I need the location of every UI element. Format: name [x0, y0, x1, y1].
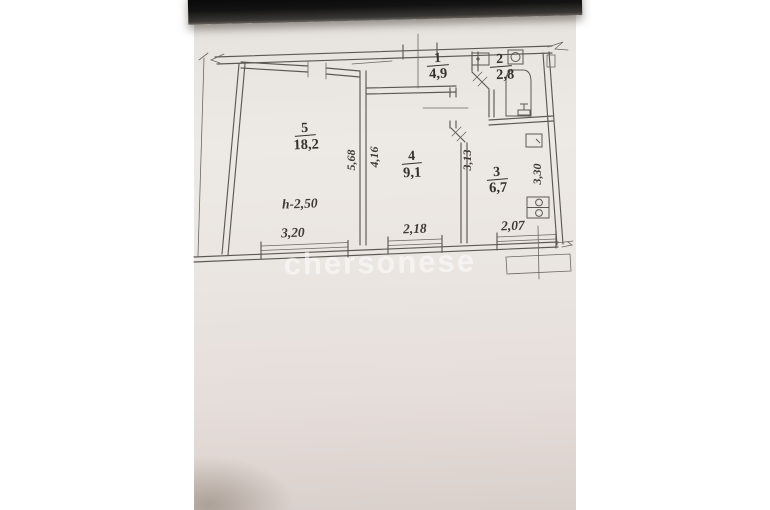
room-number: 4	[408, 149, 416, 164]
vent-shaft	[547, 55, 555, 67]
door-jamb	[308, 61, 326, 79]
width-dim-room5: 3,20	[280, 225, 305, 241]
width-dim-room4: 2,18	[402, 221, 427, 237]
page: 5 18,2 4 9,1 3 6,7 1 4,9 2 2,8 h-2,50 3,…	[0, 0, 770, 510]
room-number: 1	[434, 51, 442, 66]
break-mark-top-right	[548, 42, 568, 50]
room-area: 6,7	[489, 180, 508, 197]
room-area: 9,1	[403, 165, 422, 182]
sink-icon	[508, 50, 523, 64]
room-area: 4,9	[429, 66, 448, 83]
room-number: 2	[496, 52, 504, 67]
room-area: 18,2	[293, 137, 319, 154]
room-number: 5	[301, 121, 309, 136]
room-label-1: 1 4,9	[426, 51, 449, 83]
balcony	[506, 226, 573, 279]
room-label-4: 4 9,1	[401, 149, 422, 182]
watermark: chersonese	[283, 243, 476, 281]
room-area: 2,8	[496, 67, 515, 84]
depth-dim-room4: 4,16	[367, 147, 381, 169]
room-label-5: 5 18,2	[293, 121, 319, 154]
toilet-icon	[518, 104, 530, 115]
ceiling-height-label: h-2,50	[282, 195, 318, 211]
bathroom-door	[472, 72, 489, 89]
break-line-left	[198, 58, 204, 256]
depth-dim-room3-right: 3,30	[530, 164, 544, 186]
floor-plan-drawing: 5 18,2 4 9,1 3 6,7 1 4,9 2 2,8 h-2,50 3,…	[0, 0, 770, 510]
depth-dim-room3-left: 3,13	[460, 150, 474, 172]
stove-icon	[527, 197, 549, 218]
break-mark-top-left	[211, 54, 224, 63]
room-number: 3	[493, 165, 501, 180]
kitchen-sink-icon	[526, 134, 542, 147]
balcony-axis	[538, 226, 539, 279]
room-label-3: 3 6,7	[486, 165, 508, 197]
width-dim-room3: 2,07	[500, 218, 526, 234]
door-leaf-room5	[352, 61, 392, 64]
depth-dim-room5: 5,68	[344, 150, 358, 171]
